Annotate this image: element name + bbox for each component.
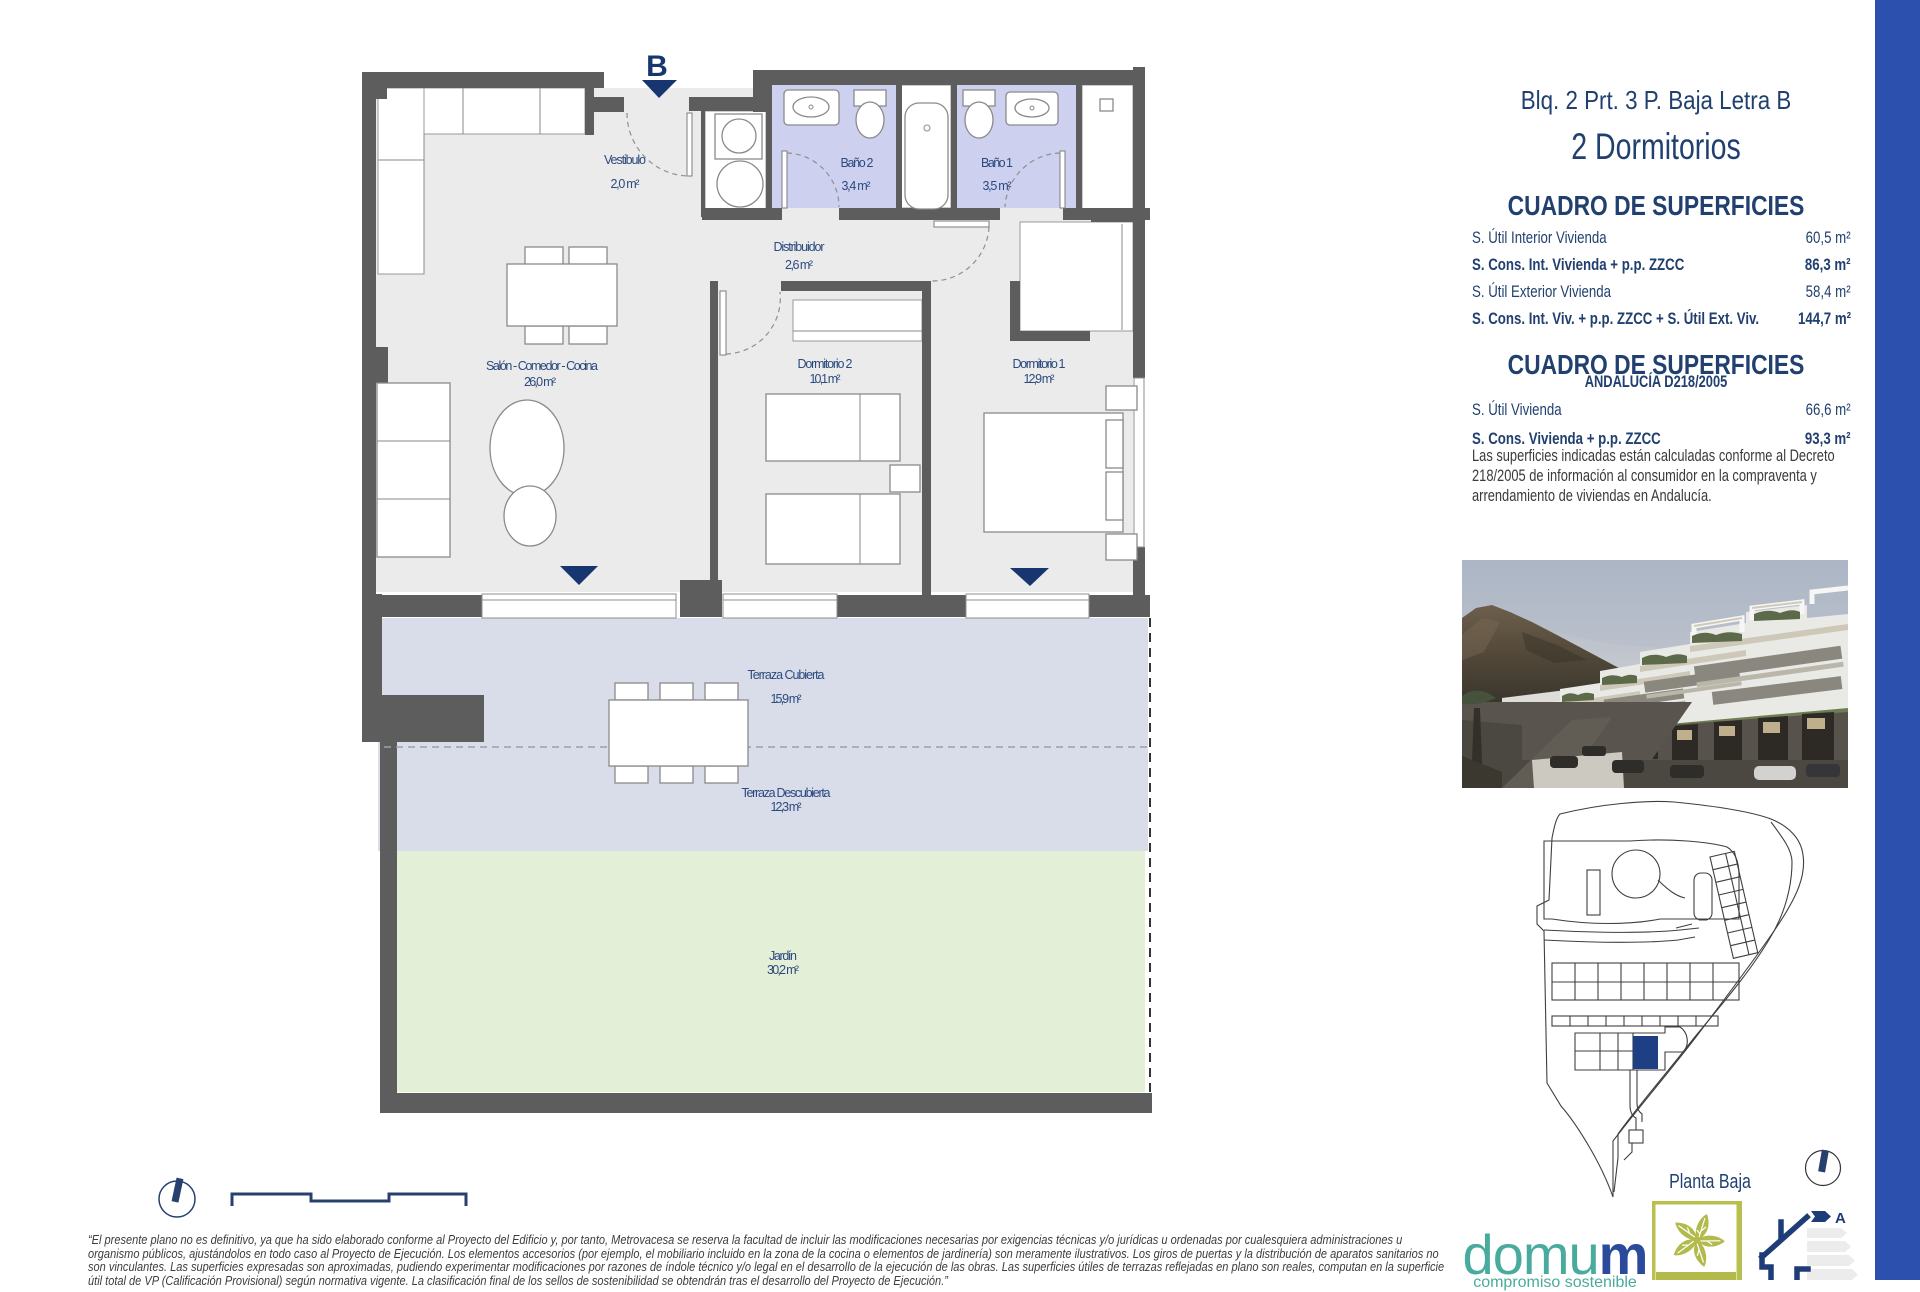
svg-text:15,9 m²: 15,9 m² [771,692,802,706]
svg-text:A: A [1835,1210,1846,1227]
svg-text:B: B [646,50,668,83]
svg-text:Dormitorio 1: Dormitorio 1 [1013,357,1066,371]
svg-text:26,0 m²: 26,0 m² [524,375,556,389]
svg-text:Salón - Comedor - Cocina: Salón - Comedor - Cocina [486,359,598,373]
svg-text:3,4 m²: 3,4 m² [842,179,871,193]
svg-text:2,0 m²: 2,0 m² [611,177,640,191]
svg-text:12,3 m²: 12,3 m² [771,800,802,814]
svg-text:Dormitorio 2: Dormitorio 2 [798,357,853,371]
svg-text:2,6 m²: 2,6 m² [785,258,813,272]
svg-text:Terraza Descubierta: Terraza Descubierta [742,786,831,800]
svg-text:3,5 m²: 3,5 m² [983,179,1012,193]
svg-text:Baño 2: Baño 2 [841,156,874,170]
svg-text:Terraza Cubierta: Terraza Cubierta [748,668,825,682]
svg-text:Vestibulo: Vestibulo [604,153,646,167]
svg-text:10,1 m²: 10,1 m² [810,372,841,386]
svg-text:30,2 m²: 30,2 m² [767,963,799,977]
svg-text:Distribuidor: Distribuidor [774,240,825,254]
svg-text:Jardín: Jardín [769,949,797,963]
svg-text:12,9 m²: 12,9 m² [1024,372,1055,386]
svg-text:Baño 1: Baño 1 [981,156,1013,170]
